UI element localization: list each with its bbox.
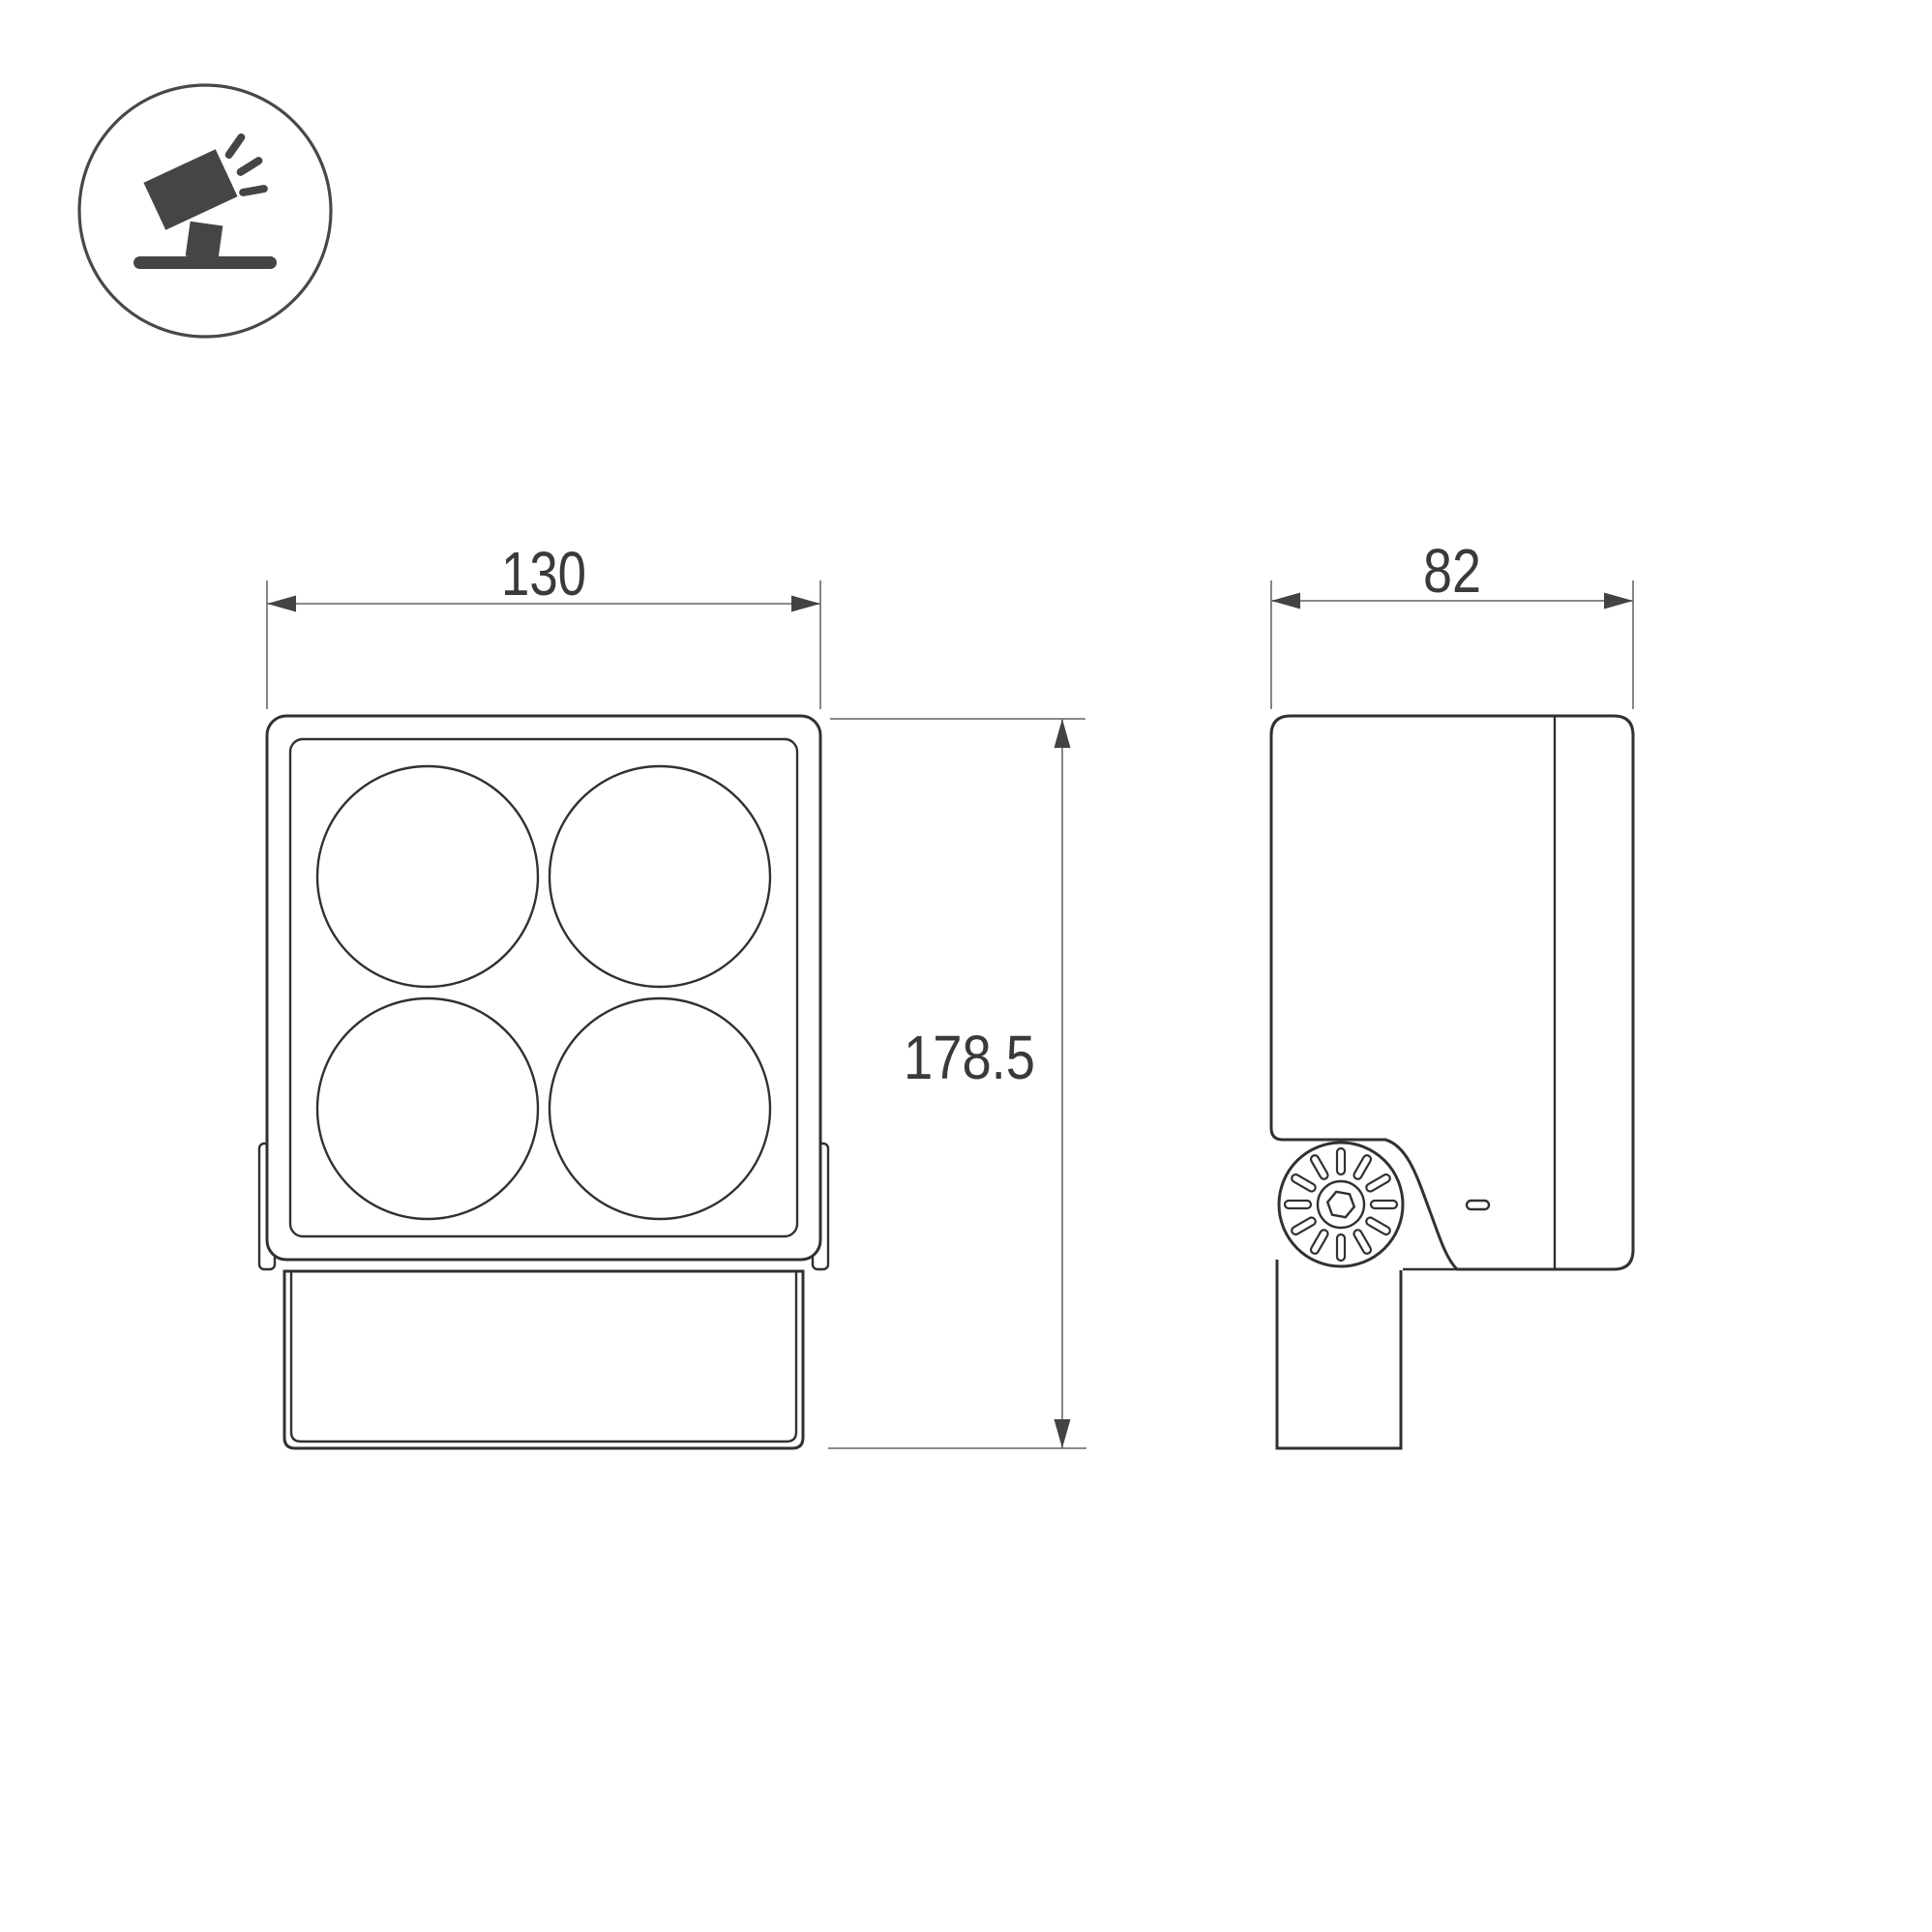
bracket-arm — [1277, 1260, 1401, 1448]
dimension-width: 130 — [267, 539, 820, 709]
arrowhead-right — [1604, 593, 1633, 609]
dimension-height: 178.5 — [828, 719, 1086, 1448]
drawing-sheet: 130 82 178.5 — [0, 0, 1932, 1932]
arrowhead-right — [791, 596, 820, 612]
arrowhead-left — [267, 596, 296, 612]
arrowhead-left — [1271, 593, 1300, 609]
arrowhead-top — [1055, 719, 1071, 748]
floodlight-category-icon — [79, 85, 331, 337]
depth-dimension-label: 82 — [1423, 536, 1481, 606]
icon-light-ray — [239, 184, 269, 196]
icon-light-ray — [223, 132, 247, 160]
icon-lamp-head — [143, 149, 237, 230]
front-view — [259, 716, 828, 1448]
width-dimension-label: 130 — [501, 539, 586, 609]
icon-light-ray — [235, 156, 264, 178]
icon-stand-stem — [186, 222, 223, 260]
front-mount-plate-inner — [291, 1271, 796, 1442]
dimension-depth: 82 — [1271, 536, 1633, 709]
drawing-svg: 130 82 178.5 — [0, 0, 1932, 1932]
front-mount-plate — [284, 1271, 803, 1448]
knob-outer-circle — [1279, 1143, 1403, 1266]
icon-stand-base — [134, 256, 277, 269]
height-dimension-label: 178.5 — [904, 1023, 1035, 1092]
side-view — [1271, 716, 1633, 1448]
arrowhead-bottom — [1055, 1419, 1071, 1448]
